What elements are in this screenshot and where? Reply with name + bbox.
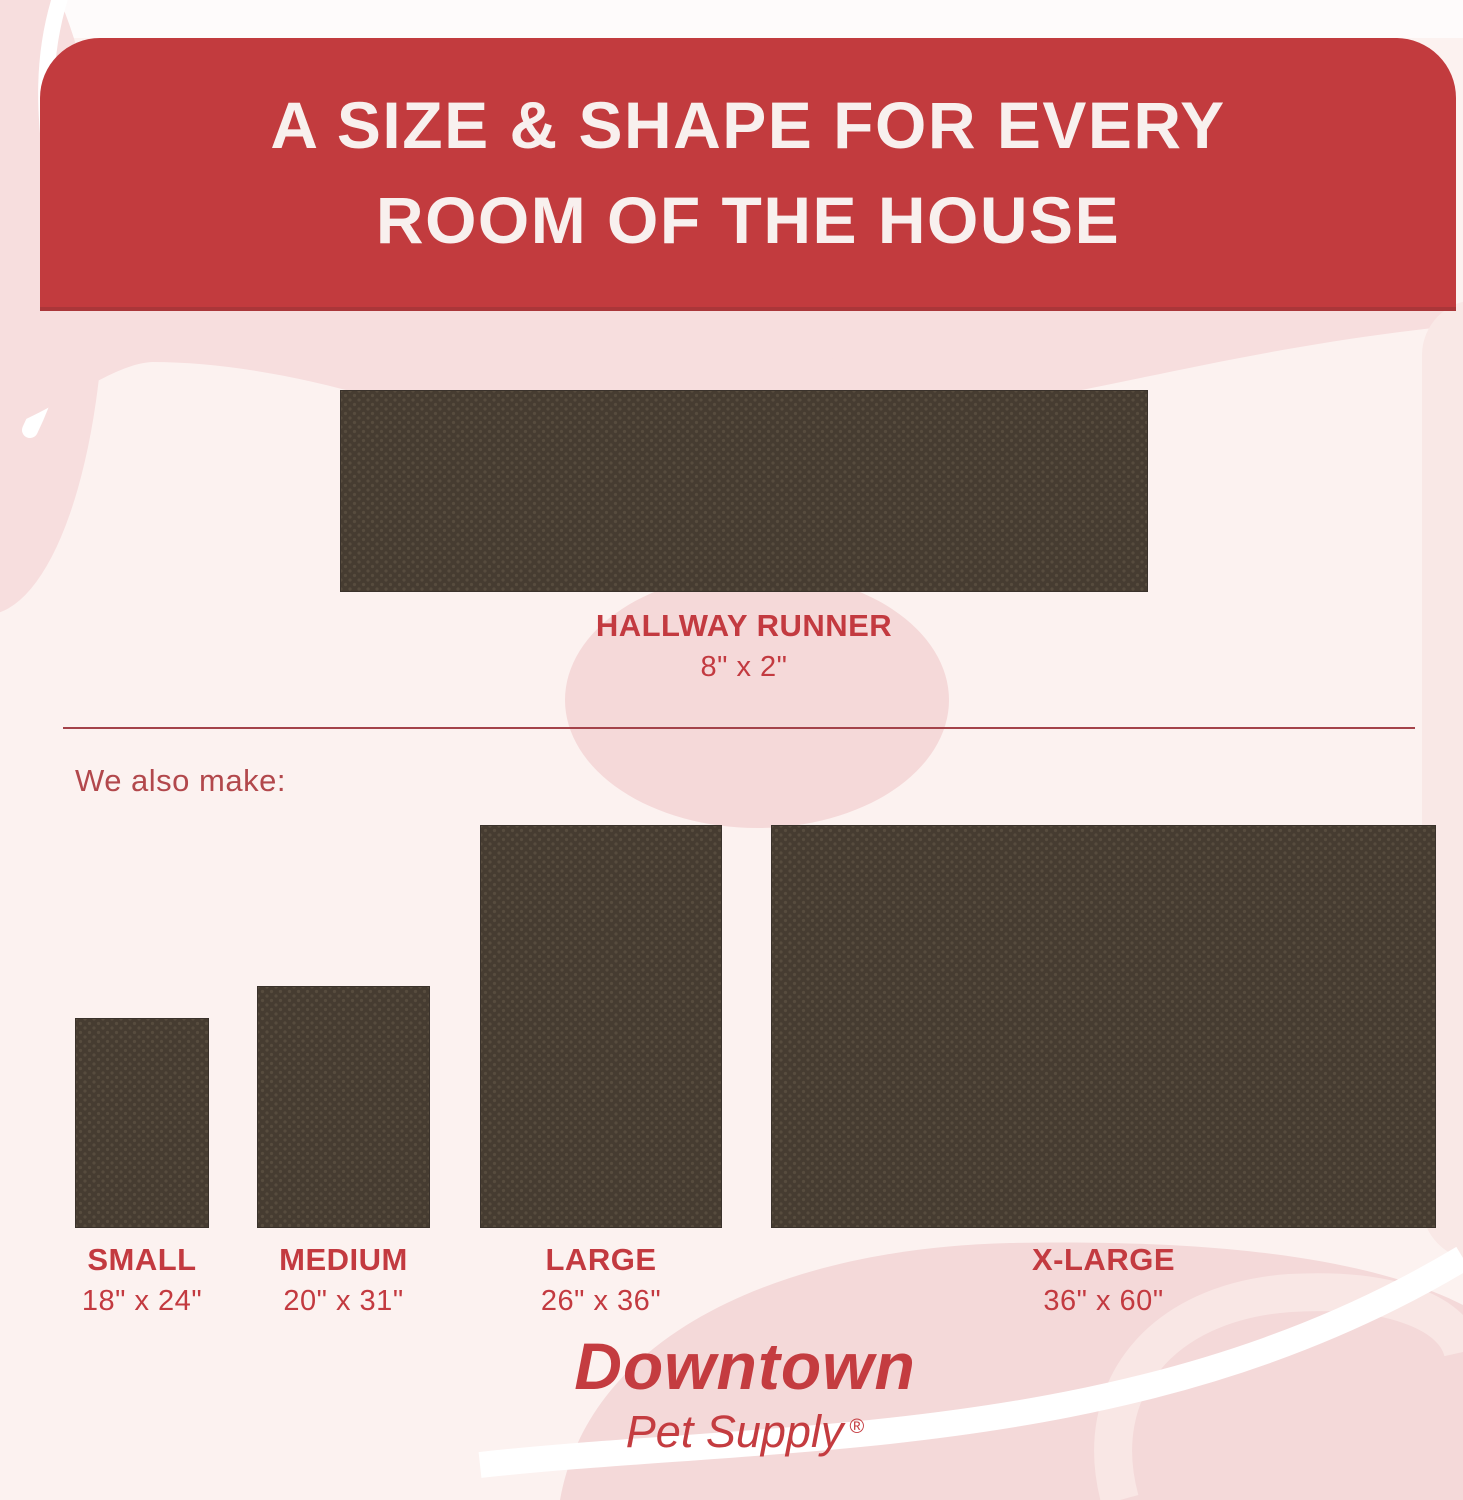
xlarge-label: X-LARGE 36" x 60" [771, 1242, 1436, 1318]
medium-dimensions: 20" x 31" [257, 1285, 430, 1318]
medium-mat [257, 986, 430, 1228]
small-label: SMALL 18" x 24" [40, 1242, 244, 1318]
large-dimensions: 26" x 36" [480, 1285, 722, 1318]
xlarge-name: X-LARGE [771, 1242, 1436, 1278]
brand-subtitle: Pet Supply® [0, 1402, 1463, 1457]
small-name: SMALL [40, 1242, 244, 1278]
small-dimensions: 18" x 24" [40, 1285, 244, 1318]
brand-logo: Downtown Pet Supply® [0, 1332, 1463, 1457]
medium-label: MEDIUM 20" x 31" [257, 1242, 430, 1318]
header-title-line2: ROOM OF THE HOUSE [376, 173, 1120, 268]
small-mat [75, 1018, 209, 1228]
section-divider [63, 727, 1415, 729]
also-make-label: We also make: [75, 763, 286, 799]
header-banner: A SIZE & SHAPE FOR EVERY ROOM OF THE HOU… [40, 38, 1456, 311]
hallway-runner-mat [340, 390, 1148, 592]
top-white-strip [0, 0, 1463, 38]
large-name: LARGE [480, 1242, 722, 1278]
xlarge-mat [771, 825, 1436, 1228]
large-mat [480, 825, 722, 1228]
xlarge-dimensions: 36" x 60" [771, 1285, 1436, 1318]
large-label: LARGE 26" x 36" [480, 1242, 722, 1318]
infographic-size-guide: A SIZE & SHAPE FOR EVERY ROOM OF THE HOU… [0, 0, 1463, 1500]
brand-subtitle-text: Pet Supply [626, 1406, 844, 1457]
hallway-runner-label: HALLWAY RUNNER 8" x 2" [340, 608, 1148, 684]
registered-trademark-symbol: ® [849, 1416, 864, 1438]
hallway-runner-name: HALLWAY RUNNER [340, 608, 1148, 644]
header-title-line1: A SIZE & SHAPE FOR EVERY [270, 78, 1225, 173]
brand-name: Downtown [0, 1332, 1463, 1400]
medium-name: MEDIUM [257, 1242, 430, 1278]
hallway-runner-dimensions: 8" x 2" [340, 651, 1148, 684]
